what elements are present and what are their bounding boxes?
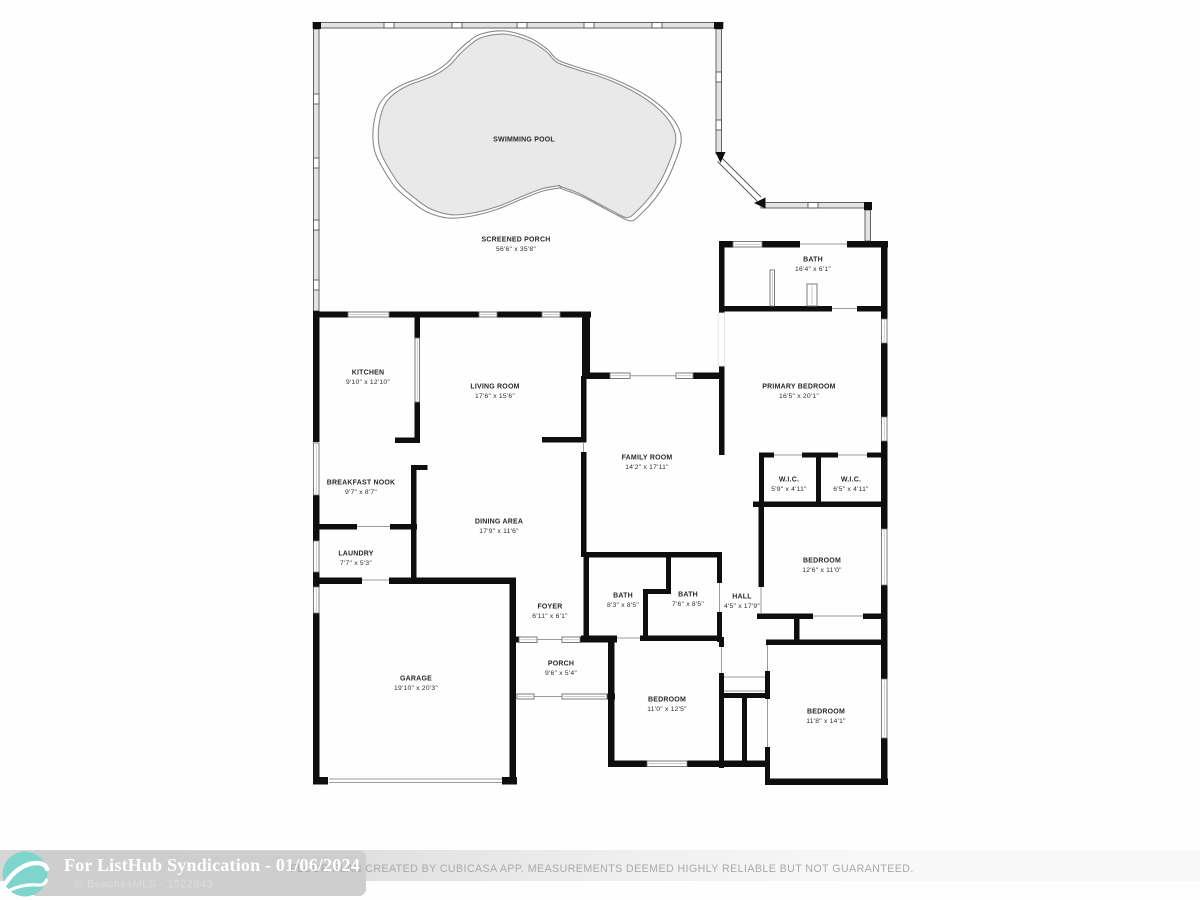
svg-text:7'7" x 5'3": 7'7" x 5'3" (340, 560, 372, 567)
svg-text:19'10" x 20'3": 19'10" x 20'3" (394, 685, 438, 692)
svg-text:HALL: HALL (732, 594, 752, 601)
svg-text:9'6" x 5'4": 9'6" x 5'4" (545, 670, 577, 677)
svg-text:For ListHub Syndication - 01/0: For ListHub Syndication - 01/06/2024 (64, 855, 360, 875)
svg-text:FOYER: FOYER (537, 604, 562, 611)
svg-text:4'5" x 17'9": 4'5" x 17'9" (724, 603, 760, 610)
svg-text:W.I.C.: W.I.C. (779, 477, 799, 484)
svg-text:GARAGE: GARAGE (400, 676, 432, 683)
svg-text:17'9" x 11'6": 17'9" x 11'6" (479, 528, 519, 535)
svg-text:BATH: BATH (678, 592, 698, 599)
svg-text:16'4" x 6'1": 16'4" x 6'1" (795, 266, 831, 273)
svg-text:DINING AREA: DINING AREA (475, 519, 523, 526)
svg-text:9'10" x 12'10": 9'10" x 12'10" (346, 379, 390, 386)
svg-text:KITCHEN: KITCHEN (352, 370, 385, 377)
svg-text:11'8" x 14'1": 11'8" x 14'1" (806, 718, 846, 725)
svg-text:BATH: BATH (613, 593, 633, 600)
svg-text:BATH: BATH (803, 257, 823, 264)
svg-text:9'7" x 8'7": 9'7" x 8'7" (345, 489, 377, 496)
svg-text:LAUNDRY: LAUNDRY (338, 551, 373, 558)
svg-text:© BeachesMLS - 1522843: © BeachesMLS - 1522843 (75, 879, 213, 891)
svg-text:BREAKFAST NOOK: BREAKFAST NOOK (327, 480, 396, 487)
svg-text:FLOOR PLAN CREATED BY CUBICASA: FLOOR PLAN CREATED BY CUBICASA APP. MEAS… (290, 863, 914, 875)
svg-text:14'2" x 17'11": 14'2" x 17'11" (625, 464, 669, 471)
svg-text:6'11" x 6'1": 6'11" x 6'1" (532, 613, 568, 620)
svg-text:8'3" x 8'5": 8'3" x 8'5" (607, 602, 639, 609)
svg-text:PORCH: PORCH (548, 661, 574, 668)
svg-text:BEDROOM: BEDROOM (803, 558, 841, 565)
svg-text:SWIMMING POOL: SWIMMING POOL (493, 137, 555, 144)
svg-text:16'5" x 20'1": 16'5" x 20'1" (779, 393, 819, 400)
svg-text:W.I.C.: W.I.C. (841, 477, 861, 484)
svg-text:5'9" x 4'11": 5'9" x 4'11" (771, 486, 807, 493)
svg-text:FAMILY ROOM: FAMILY ROOM (622, 455, 673, 462)
svg-text:BEDROOM: BEDROOM (648, 697, 686, 704)
svg-text:11'0" x 12'5": 11'0" x 12'5" (647, 706, 687, 713)
svg-text:7'6" x 8'5": 7'6" x 8'5" (672, 601, 704, 608)
svg-text:BEDROOM: BEDROOM (807, 709, 845, 716)
svg-text:PRIMARY BEDROOM: PRIMARY BEDROOM (762, 384, 835, 391)
svg-text:LIVING ROOM: LIVING ROOM (470, 384, 519, 391)
svg-text:6'5" x 4'11": 6'5" x 4'11" (833, 486, 869, 493)
svg-text:SCREENED PORCH: SCREENED PORCH (482, 237, 551, 244)
svg-text:17'6" x 15'6": 17'6" x 15'6" (475, 393, 515, 400)
svg-text:12'6" x 11'0": 12'6" x 11'0" (802, 567, 842, 574)
svg-text:56'6" x 35'8": 56'6" x 35'8" (496, 246, 536, 253)
